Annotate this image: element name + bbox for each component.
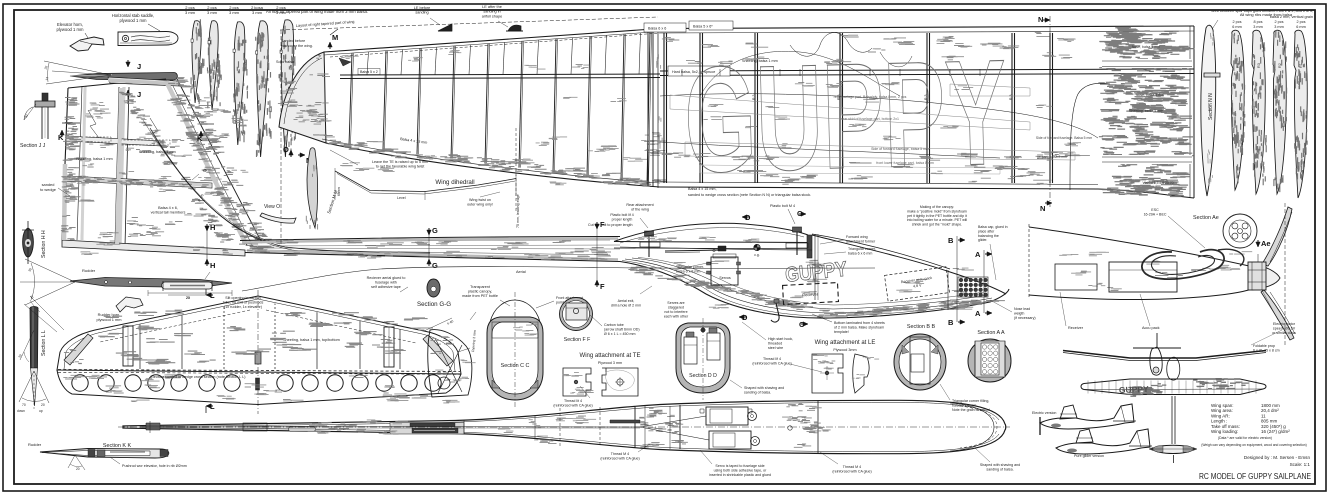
svg-text:Thread lit 4: Thread lit 4 xyxy=(564,399,582,403)
svg-text:8 pcs: 8 pcs xyxy=(1253,20,1262,24)
svg-text:(Data * are valid for electric: (Data * are valid for electric version) xyxy=(1218,436,1272,440)
svg-text:R.3: R.3 xyxy=(1009,95,1013,101)
svg-text:3 mm: 3 mm xyxy=(1253,25,1263,29)
svg-text:airfoil shape: airfoil shape xyxy=(482,14,502,18)
svg-text:O: O xyxy=(283,145,289,154)
svg-text:6 mm: 6 mm xyxy=(1296,25,1306,29)
svg-text:Receiver: Receiver xyxy=(1068,326,1084,330)
svg-text:Sanded before: Sanded before xyxy=(281,39,305,43)
svg-text:C: C xyxy=(797,209,803,218)
svg-text:Section K K: Section K K xyxy=(103,443,132,449)
svg-text:G: G xyxy=(432,261,438,270)
svg-text:(Weigh can vary depending on e: (Weigh can vary depending on equipment, … xyxy=(1201,443,1307,447)
svg-text:each with other: each with other xyxy=(664,315,689,319)
svg-text:H: H xyxy=(210,223,215,232)
svg-text:R2: R2 xyxy=(1278,63,1282,68)
svg-text:Shaped with shaving and: Shaped with shaving and xyxy=(744,386,784,390)
svg-text:Section F F: Section F F xyxy=(564,337,591,343)
svg-text:ESC: ESC xyxy=(1151,208,1159,212)
svg-text:threaded: threaded xyxy=(768,342,782,346)
svg-text:Servos: Servos xyxy=(719,276,731,280)
svg-text:Wing loading:: Wing loading: xyxy=(1211,429,1238,434)
svg-text:Wing dihedrall: Wing dihedrall xyxy=(435,179,474,186)
svg-text:LE before: LE before xyxy=(414,6,430,10)
svg-text:Sheeting, balsa 1 mm: Sheeting, balsa 1 mm xyxy=(1129,109,1163,113)
svg-text:M: M xyxy=(332,33,338,42)
svg-text:68mm: 68mm xyxy=(337,187,341,196)
svg-text:Section B B: Section B B xyxy=(907,324,936,330)
svg-text:Elevator sanded in wedge cross: Elevator sanded in wedge cross section (… xyxy=(151,375,246,379)
svg-text:Plastic bolt M 4: Plastic bolt M 4 xyxy=(770,204,795,208)
svg-text:to get the favorable wing twis: to get the favorable wing twist xyxy=(376,165,425,169)
svg-text:Thread M 4: Thread M 4 xyxy=(843,465,861,469)
svg-text:plywood 1 mm: plywood 1 mm xyxy=(57,27,85,32)
svg-text:Forward wing: Forward wing xyxy=(846,235,868,239)
svg-text:attachment former: attachment former xyxy=(846,240,876,244)
svg-text:Electric version: Electric version xyxy=(1032,411,1056,415)
svg-text:Plywood 3 mm: Plywood 3 mm xyxy=(598,361,622,365)
svg-text:R1: R1 xyxy=(1299,63,1303,68)
svg-text:D: D xyxy=(745,213,751,222)
svg-text:Sheeting, balsa 1 mm: Sheeting, balsa 1 mm xyxy=(139,150,176,154)
svg-text:20: 20 xyxy=(76,467,80,471)
svg-text:3 mm: 3 mm xyxy=(1274,25,1284,29)
svg-text:Plastic bolt lif 4: Plastic bolt lif 4 xyxy=(610,213,633,217)
svg-text:20: 20 xyxy=(41,403,45,407)
svg-text:3 mm: 3 mm xyxy=(252,10,263,15)
svg-text:pet it tightly in the PET bott: pet it tightly in the PET bottle and dip… xyxy=(907,214,967,218)
svg-text:Thread M 4: Thread M 4 xyxy=(611,452,629,456)
svg-text:Triangular corner filling,: Triangular corner filling, xyxy=(952,399,989,403)
svg-text:balsa 6 x 8 mm: balsa 6 x 8 mm xyxy=(676,270,700,274)
svg-text:sanding in: sanding in xyxy=(483,10,500,14)
svg-text:Section N N: Section N N xyxy=(1208,93,1214,120)
svg-text:High start hook,: High start hook, xyxy=(768,337,793,341)
svg-text:tube, for exit of pushrods: tube, for exit of pushrods xyxy=(223,301,264,305)
svg-text:Leave the TE is raised up to 5: Leave the TE is raised up to 5 mm xyxy=(372,160,428,164)
svg-text:D: D xyxy=(742,313,748,322)
svg-text:Reciever: Reciever xyxy=(802,292,819,298)
svg-text:70: 70 xyxy=(22,403,26,407)
svg-text:K: K xyxy=(197,134,203,143)
svg-text:proper length: proper length xyxy=(612,217,633,221)
svg-text:Level: Level xyxy=(397,196,406,200)
svg-text:drill a hole Ø 2 mm: drill a hole Ø 2 mm xyxy=(611,304,641,308)
svg-text:C: C xyxy=(799,320,805,329)
svg-text:of the wing: of the wing xyxy=(631,208,649,212)
svg-text:Scale: 1:1: Scale: 1:1 xyxy=(1290,462,1311,467)
svg-text:weigth: weigth xyxy=(1014,312,1024,316)
svg-text:plywood 1 mm: plywood 1 mm xyxy=(120,18,148,23)
svg-text:Section Ae: Section Ae xyxy=(1193,215,1219,221)
svg-text:(if necessary): (if necessary) xyxy=(1014,316,1036,320)
svg-text:you cover the wing.: you cover the wing. xyxy=(281,44,313,48)
svg-text:steel wire: steel wire xyxy=(768,346,783,350)
svg-text:LE after the: LE after the xyxy=(482,5,502,9)
svg-text:R3: R3 xyxy=(1257,63,1261,68)
svg-text:75 mm, leading edge: 75 mm, leading edge xyxy=(516,194,520,228)
svg-text:J: J xyxy=(137,62,141,71)
svg-text:Balsa 6 x 6: Balsa 6 x 6 xyxy=(648,27,666,31)
svg-text:balsa 6 x 6 mm: balsa 6 x 6 mm xyxy=(848,252,872,256)
svg-text:Wing attachment at LE: Wing attachment at LE xyxy=(815,340,876,346)
svg-text:GUPPY: GUPPY xyxy=(1119,384,1149,395)
svg-text:c.g.: c.g. xyxy=(754,253,760,257)
svg-text:Section G-G: Section G-G xyxy=(417,301,451,308)
svg-text:fuselage with: fuselage with xyxy=(375,281,397,285)
svg-text:RC MODEL OF GUPPY SAILPLANE: RC MODEL OF GUPPY SAILPLANE xyxy=(1199,471,1311,481)
svg-text:not to interfere: not to interfere xyxy=(664,310,687,314)
svg-text:place after: place after xyxy=(978,229,995,233)
svg-text:Pushrod wor elevator, hole in: Pushrod wor elevator, hole in rib Ø2mm xyxy=(122,464,187,468)
svg-text:All wing ribs made from balsa: All wing ribs made from balsa xyxy=(1240,12,1293,17)
svg-text:make a "positive mold" from st: make a "positive mold" from styrofoam xyxy=(907,209,967,213)
svg-text:K: K xyxy=(58,133,64,142)
svg-text:G: G xyxy=(432,226,438,235)
svg-text:self adhesive tape: self adhesive tape xyxy=(371,285,401,289)
svg-text:glider.: glider. xyxy=(978,238,987,242)
svg-text:Transparent: Transparent xyxy=(470,285,490,289)
svg-text:All ribs for tapered part of w: All ribs for tapered part of wing made f… xyxy=(266,9,368,14)
svg-text:Wing attachment at TE: Wing attachment at TE xyxy=(580,353,641,359)
svg-text:GUPPY: GUPPY xyxy=(682,28,1008,204)
svg-text:Cut the bolt to proper length: Cut the bolt to proper length xyxy=(588,223,633,227)
svg-text:Balsa 4 x 6,: Balsa 4 x 6, xyxy=(158,206,178,210)
svg-text:Making of the canopy:: Making of the canopy: xyxy=(920,205,954,209)
svg-text:Aerial: Aerial xyxy=(516,270,526,274)
svg-text:Rear attachment: Rear attachment xyxy=(626,203,653,207)
svg-text:Balsa 5 x 6*: Balsa 5 x 6* xyxy=(693,25,713,29)
svg-text:Ø 6 x 1 L = 450 mm: Ø 6 x 1 L = 450 mm xyxy=(604,332,636,336)
svg-text:F: F xyxy=(600,282,605,291)
svg-text:(1x rudder, 1x elevator): (1x rudder, 1x elevator) xyxy=(224,305,262,309)
svg-text:B: B xyxy=(948,318,954,327)
svg-text:Foldable prop: Foldable prop xyxy=(1253,344,1275,348)
svg-text:Triangular corner,: Triangular corner, xyxy=(848,247,876,251)
svg-text:(reinforced with CA glue): (reinforced with CA glue) xyxy=(600,457,639,461)
svg-text:(reinforced with CA glue): (reinforced with CA glue) xyxy=(752,362,791,366)
svg-text:L: L xyxy=(210,291,215,300)
svg-text:sanding of balsa.: sanding of balsa. xyxy=(744,391,771,395)
svg-text:Servo is taped to fuselage sid: Servo is taped to fuselage side xyxy=(715,464,764,468)
svg-text:Section A A: Section A A xyxy=(977,330,1005,336)
svg-text:Plywood 3mm: Plywood 3mm xyxy=(833,348,856,352)
svg-text:down: down xyxy=(17,409,25,413)
svg-text:Sheeting, balsa 1 mm: Sheeting, balsa 1 mm xyxy=(76,157,113,161)
svg-text:Wing twist on: Wing twist on xyxy=(469,198,491,202)
svg-text:Balsa 5 x 2: Balsa 5 x 2 xyxy=(360,70,378,74)
svg-text:outer wing only!: outer wing only! xyxy=(467,203,493,207)
svg-text:Aerial exit,: Aerial exit, xyxy=(618,299,635,303)
svg-text:speed 400 6V: speed 400 6V xyxy=(1273,327,1296,331)
svg-text:R4: R4 xyxy=(1236,63,1240,68)
svg-text:balancing the: balancing the xyxy=(978,234,999,238)
svg-text:Vlahka 1,5 d,5 20 70: Vlahka 1,5 d,5 20 70 xyxy=(1142,181,1173,185)
svg-text:made from PET bottle: made from PET bottle xyxy=(462,294,498,298)
svg-text:N: N xyxy=(1038,15,1043,24)
svg-text:2 pcs: 2 pcs xyxy=(1296,20,1305,24)
svg-text:H: H xyxy=(210,261,215,270)
svg-text:(arrow shaft 6mm OD): (arrow shaft 6mm OD) xyxy=(604,328,640,332)
svg-text:View O: View O xyxy=(264,204,280,210)
svg-text:Reciever aerial glued to: Reciever aerial glued to xyxy=(367,276,406,280)
svg-text:Triangular corner,: Triangular corner, xyxy=(676,265,704,269)
svg-text:A: A xyxy=(975,309,981,318)
svg-text:N: N xyxy=(1040,204,1045,213)
svg-text:Nose, balsa 5 mm: Nose, balsa 5 mm xyxy=(1136,93,1164,97)
svg-text:of 2 mm balsa. Make styrofoam: of 2 mm balsa. Make styrofoam xyxy=(834,326,884,330)
svg-text:F: F xyxy=(600,220,605,229)
svg-text:template!: template! xyxy=(834,330,849,334)
svg-text:Nose lead: Nose lead xyxy=(1014,307,1030,311)
svg-text:Section L L: Section L L xyxy=(41,330,47,356)
svg-text:into boiling water for a minut: into boiling water for a minute. PET wil… xyxy=(907,218,967,222)
svg-text:Section H H: Section H H xyxy=(41,230,47,258)
svg-text:Balsa cap, glued in: Balsa cap, glued in xyxy=(978,225,1008,229)
svg-text:Rudder: Rudder xyxy=(82,268,96,273)
svg-text:using both side adhesive tape,: using both side adhesive tape, or xyxy=(714,469,768,473)
svg-text:staggered: staggered xyxy=(668,306,684,310)
svg-text:Designed by : M. Sersen - Emsn: Designed by : M. Sersen - Emsn xyxy=(1244,455,1311,460)
svg-text:sanding: sanding xyxy=(415,11,428,15)
svg-text:shriek and got the "mold" shap: shriek and got the "mold" shape. xyxy=(912,223,962,227)
svg-text:Nose, balsa 5 mm: Nose, balsa 5 mm xyxy=(1132,45,1160,49)
svg-text:vertical tail members: vertical tail members xyxy=(151,211,186,215)
svg-text:up: up xyxy=(39,409,43,413)
svg-text:J: J xyxy=(137,90,141,99)
svg-text:3 mm: 3 mm xyxy=(229,10,240,15)
svg-text:2 pcs: 2 pcs xyxy=(1274,20,1283,24)
svg-text:to wedge: to wedge xyxy=(40,187,56,192)
svg-text:Section C C: Section C C xyxy=(501,363,530,369)
svg-text:inserted in shrinkable plastic: inserted in shrinkable plastic and glued xyxy=(709,473,771,477)
svg-text:Shaped with shaving and: Shaped with shaving and xyxy=(980,463,1020,467)
svg-text:Ae: Ae xyxy=(1261,239,1271,248)
svg-text:16 (24*) g/dm²: 16 (24*) g/dm² xyxy=(1261,429,1290,434)
svg-text:Bottom laminated from 4 sheets: Bottom laminated from 4 sheets xyxy=(834,321,885,325)
svg-text:20: 20 xyxy=(186,296,190,300)
svg-text:Pure glider version: Pure glider version xyxy=(1074,454,1104,458)
svg-text:ge part, balsa 8 mm: ge part, balsa 8 mm xyxy=(1037,155,1067,159)
svg-text:Rudder: Rudder xyxy=(28,442,42,447)
svg-text:A: A xyxy=(975,250,981,259)
svg-text:Serves are: Serves are xyxy=(667,301,684,305)
svg-text:Section J J: Section J J xyxy=(20,143,46,149)
svg-text:Carbon tube: Carbon tube xyxy=(604,323,624,327)
svg-text:plastic canopy,: plastic canopy, xyxy=(468,290,492,294)
svg-text:B: B xyxy=(948,236,954,245)
svg-text:Accu pack: Accu pack xyxy=(1142,326,1160,330)
svg-text:6 mm: 6 mm xyxy=(1232,25,1242,29)
svg-text:O: O xyxy=(203,168,207,173)
svg-text:16-29A + BEC: 16-29A + BEC xyxy=(1144,213,1167,217)
svg-text:sanding of balsa.: sanding of balsa. xyxy=(986,468,1013,472)
svg-text:(reinforced with CA glue): (reinforced with CA glue) xyxy=(553,404,592,408)
svg-text:Electric motor: Electric motor xyxy=(1273,322,1296,326)
svg-text:3 mm: 3 mm xyxy=(185,10,196,15)
svg-text:Side of forward fuselage. Bals: Side of forward fuselage. Balsa 5 mm xyxy=(1036,136,1093,140)
svg-text:Thread lif 4: Thread lif 4 xyxy=(763,357,781,361)
svg-text:3 mm: 3 mm xyxy=(207,10,218,15)
svg-text:Solid balsa: Solid balsa xyxy=(276,60,295,64)
svg-text:2 pcs: 2 pcs xyxy=(1232,20,1241,24)
svg-text:Sheeting, balsa 1 mm, top/bott: Sheeting, balsa 1 mm, top/bottom xyxy=(283,338,340,342)
svg-text:Slit opening in carbon: Slit opening in carbon xyxy=(225,296,260,300)
svg-text:L: L xyxy=(210,402,215,411)
svg-text:(reinforced with CA glue): (reinforced with CA glue) xyxy=(832,470,871,474)
